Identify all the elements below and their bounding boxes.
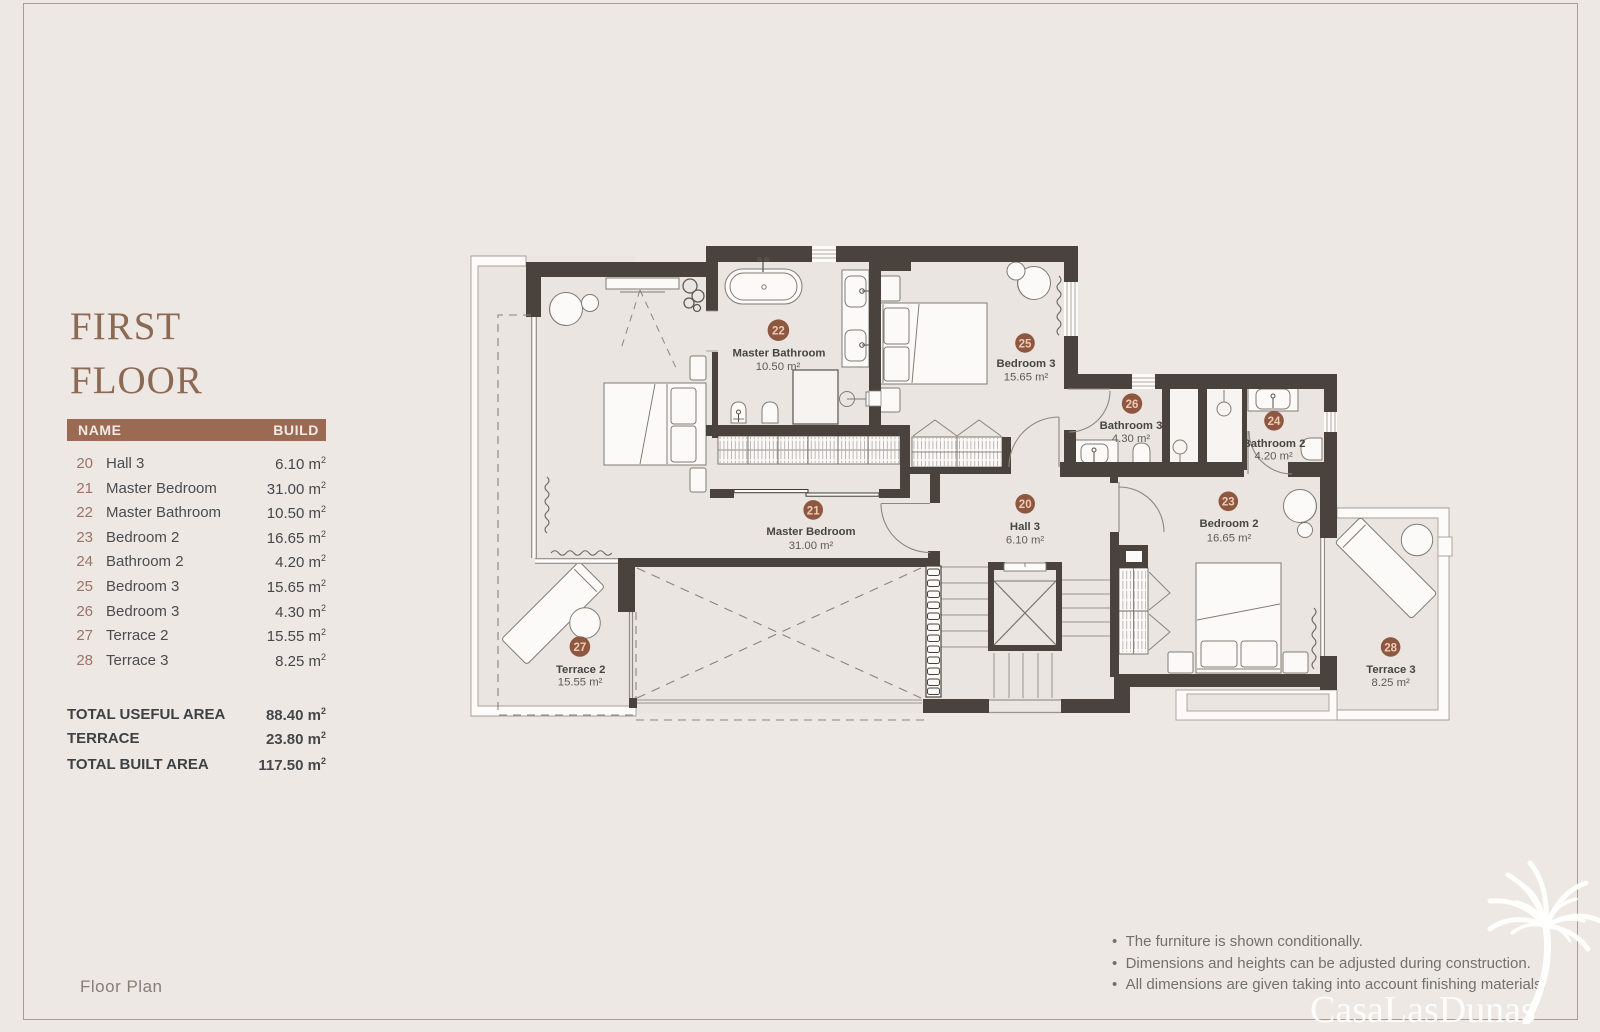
svg-text:25: 25 (1019, 338, 1032, 350)
svg-text:15.65 m²: 15.65 m² (1004, 372, 1049, 384)
svg-text:4.30 m²: 4.30 m² (1112, 433, 1151, 445)
svg-text:Bathroom 2: Bathroom 2 (1243, 438, 1306, 450)
svg-text:26: 26 (1126, 399, 1139, 411)
svg-text:Bathroom 3: Bathroom 3 (1100, 420, 1163, 432)
svg-text:Terrace 3: Terrace 3 (1366, 664, 1415, 676)
svg-text:6.10 m²: 6.10 m² (1006, 535, 1045, 547)
svg-text:Terrace 2: Terrace 2 (556, 664, 605, 676)
svg-text:27: 27 (574, 642, 587, 654)
svg-text:23: 23 (1222, 497, 1235, 509)
svg-text:Bedroom 2: Bedroom 2 (1199, 518, 1258, 530)
svg-text:Hall 3: Hall 3 (1010, 521, 1040, 533)
svg-text:16.65 m²: 16.65 m² (1207, 533, 1252, 545)
svg-text:24: 24 (1268, 416, 1281, 428)
svg-text:28: 28 (1384, 642, 1397, 654)
svg-text:8.25 m²: 8.25 m² (1371, 677, 1410, 689)
svg-text:22: 22 (772, 326, 785, 338)
svg-text:10.50 m²: 10.50 m² (756, 361, 801, 373)
svg-text:15.55 m²: 15.55 m² (558, 677, 603, 689)
svg-text:Bedroom 3: Bedroom 3 (996, 358, 1055, 370)
svg-text:Master Bathroom: Master Bathroom (733, 348, 826, 360)
svg-text:Master Bedroom: Master Bedroom (766, 526, 855, 538)
svg-text:20: 20 (1019, 499, 1032, 511)
svg-text:31.00 m²: 31.00 m² (789, 540, 834, 552)
svg-text:4.20 m²: 4.20 m² (1254, 451, 1293, 463)
svg-text:21: 21 (807, 505, 820, 517)
